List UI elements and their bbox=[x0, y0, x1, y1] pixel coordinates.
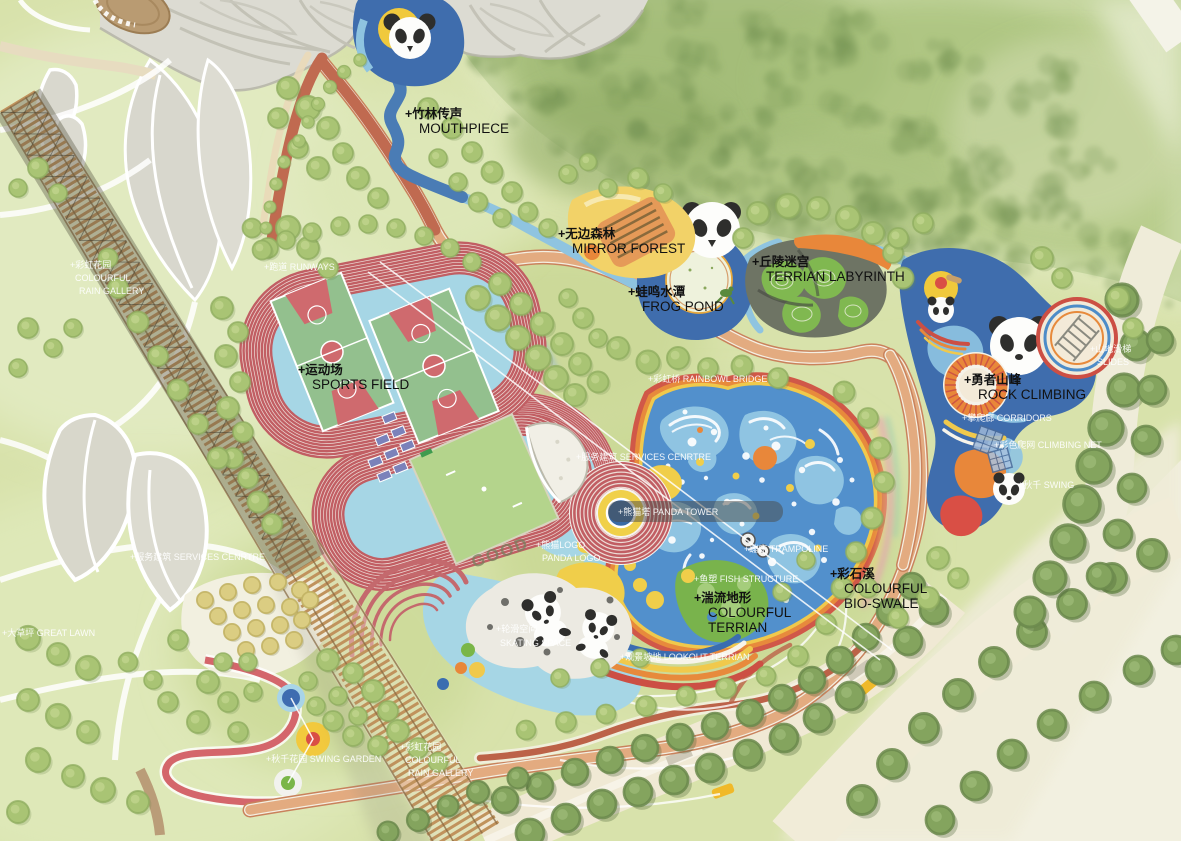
svg-text:SPORTS FIELD: SPORTS FIELD bbox=[312, 377, 410, 392]
svg-text:+彩石溪: +彩石溪 bbox=[830, 566, 875, 581]
svg-text:+服务建筑 SERVICES CENRTRE: +服务建筑 SERVICES CENRTRE bbox=[576, 451, 711, 462]
svg-text:+秋千花园 SWING GARDEN: +秋千花园 SWING GARDEN bbox=[266, 753, 381, 764]
svg-text:+轮滑空间: +轮滑空间 bbox=[496, 623, 537, 634]
svg-text:+熊猫塔 PANDA TOWER: +熊猫塔 PANDA TOWER bbox=[618, 506, 719, 517]
svg-text:+跑道 RUNWAYS: +跑道 RUNWAYS bbox=[264, 261, 335, 272]
svg-text:RAIN GALLERY: RAIN GALLERY bbox=[408, 768, 473, 778]
svg-text:+彩虹桥 RAINBOWL BRIDGE: +彩虹桥 RAINBOWL BRIDGE bbox=[648, 373, 767, 384]
svg-text:MOUTHPIECE: MOUTHPIECE bbox=[419, 121, 509, 136]
svg-text:+服务建筑 SERVICES CENRTRE: +服务建筑 SERVICES CENRTRE bbox=[130, 551, 265, 562]
svg-text:COLOURFUL: COLOURFUL bbox=[75, 273, 131, 283]
svg-text:+蹦床 TRAMPOLINE: +蹦床 TRAMPOLINE bbox=[744, 543, 828, 554]
svg-text:COLOURFUL: COLOURFUL bbox=[405, 755, 461, 765]
svg-text:+山地滑梯: +山地滑梯 bbox=[1090, 343, 1131, 354]
svg-text:COLOURFUL: COLOURFUL bbox=[708, 605, 792, 620]
svg-text:PANDA LOGO: PANDA LOGO bbox=[542, 553, 600, 563]
svg-text:+无边森林: +无边森林 bbox=[558, 226, 616, 241]
svg-text:+彩色爬网 CLIMBING NET: +彩色爬网 CLIMBING NET bbox=[994, 439, 1102, 450]
svg-text:+观景坡地 LOOKOUT TERRIAN: +观景坡地 LOOKOUT TERRIAN bbox=[620, 651, 749, 662]
svg-text:+彩虹花园: +彩虹花园 bbox=[400, 741, 441, 752]
svg-text:SLIDES: SLIDES bbox=[1097, 357, 1129, 367]
svg-text:+彩虹花园: +彩虹花园 bbox=[70, 259, 111, 270]
svg-text:COLOURFUL: COLOURFUL bbox=[844, 581, 928, 596]
svg-text:+湍流地形: +湍流地形 bbox=[694, 590, 752, 605]
svg-text:+大草坪 GREAT LAWN: +大草坪 GREAT LAWN bbox=[2, 627, 95, 638]
svg-text:+攀爬廊 CORRIDORS: +攀爬廊 CORRIDORS bbox=[962, 412, 1052, 423]
svg-text:+勇者山峰: +勇者山峰 bbox=[964, 372, 1022, 387]
svg-text:MIRROR FOREST: MIRROR FOREST bbox=[572, 241, 685, 256]
svg-text:+丘陵迷宫: +丘陵迷宫 bbox=[752, 254, 809, 269]
svg-text:+竹林传声: +竹林传声 bbox=[405, 106, 462, 121]
svg-text:+鱼塑 FISH STRUCTURE: +鱼塑 FISH STRUCTURE bbox=[694, 573, 798, 584]
svg-text:BIO-SWALE: BIO-SWALE bbox=[844, 596, 919, 611]
svg-text:SKATING SPACE: SKATING SPACE bbox=[500, 638, 571, 648]
svg-text:+熊猫LOGO: +熊猫LOGO bbox=[536, 539, 585, 550]
svg-text:+运动场: +运动场 bbox=[298, 363, 343, 377]
svg-text:+秋千 SWING: +秋千 SWING bbox=[1018, 479, 1074, 490]
svg-text:+蛙鸣水潭: +蛙鸣水潭 bbox=[628, 284, 686, 299]
svg-text:FROG POND: FROG POND bbox=[642, 299, 724, 314]
svg-text:RAIN GALLERY: RAIN GALLERY bbox=[79, 286, 144, 296]
svg-text:TERRIAN: TERRIAN bbox=[708, 620, 767, 635]
svg-text:ROCK CLIMBING: ROCK CLIMBING bbox=[978, 387, 1086, 402]
svg-text:TERRIAN LABYRINTH: TERRIAN LABYRINTH bbox=[766, 269, 905, 284]
